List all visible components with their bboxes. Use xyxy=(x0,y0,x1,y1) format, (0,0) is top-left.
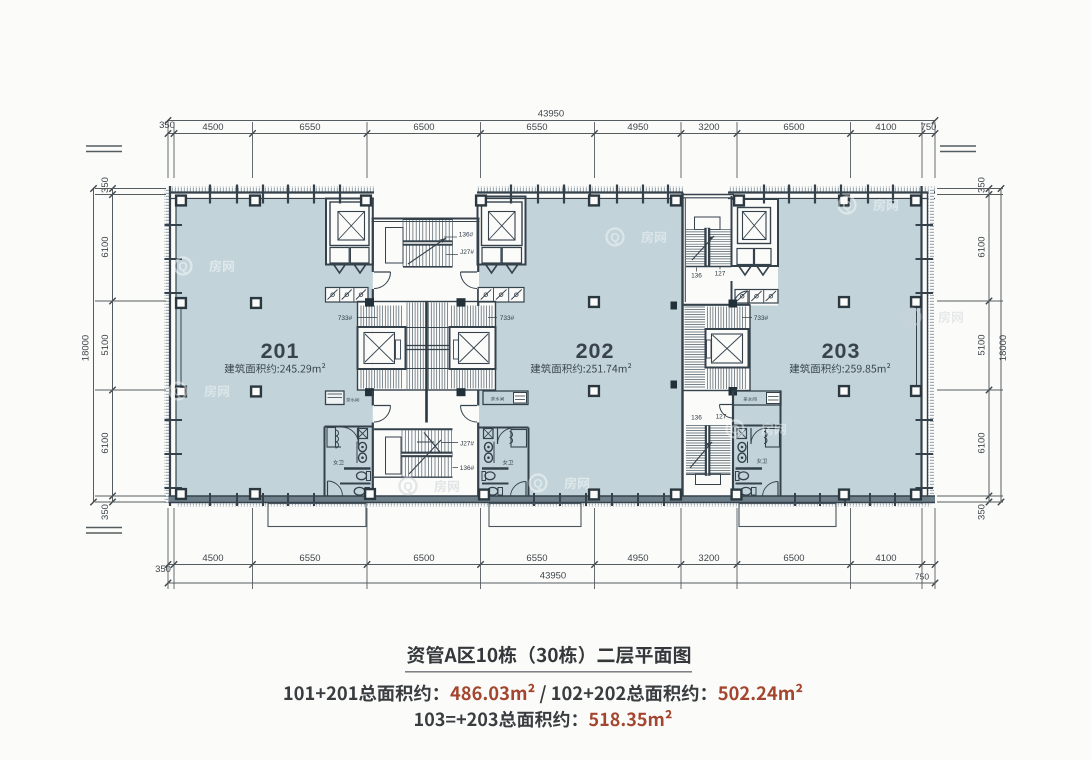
svg-text:6500: 6500 xyxy=(413,122,434,133)
svg-text:201: 201 xyxy=(261,339,300,363)
svg-text:136#: 136# xyxy=(459,232,474,239)
svg-text:Q: Q xyxy=(730,423,739,437)
svg-text:Q: Q xyxy=(178,260,187,274)
svg-text:350: 350 xyxy=(100,177,111,193)
svg-text:127: 127 xyxy=(716,414,727,421)
svg-text:733#: 733# xyxy=(754,315,769,322)
svg-text:4100: 4100 xyxy=(875,553,896,564)
svg-text:350: 350 xyxy=(100,504,111,520)
svg-text:350: 350 xyxy=(977,504,988,520)
svg-text:6500: 6500 xyxy=(413,553,434,564)
svg-text:3200: 3200 xyxy=(698,553,719,564)
svg-text:750: 750 xyxy=(921,122,937,133)
svg-text:136#: 136# xyxy=(460,465,475,472)
svg-text:Q: Q xyxy=(403,480,412,494)
svg-text:4950: 4950 xyxy=(627,122,648,133)
svg-text:6100: 6100 xyxy=(977,432,988,453)
svg-text:733#: 733# xyxy=(338,315,353,322)
svg-text:350: 350 xyxy=(977,177,988,193)
svg-text:5100: 5100 xyxy=(977,334,988,355)
svg-text:6550: 6550 xyxy=(526,553,547,564)
svg-text:203: 203 xyxy=(822,339,861,363)
svg-text:6550: 6550 xyxy=(526,122,547,133)
svg-text:5100: 5100 xyxy=(100,334,111,355)
svg-text:733#: 733# xyxy=(500,315,515,322)
svg-text:136: 136 xyxy=(691,415,702,422)
svg-text:350: 350 xyxy=(155,564,171,575)
svg-text:18000: 18000 xyxy=(81,335,92,361)
svg-text:43950: 43950 xyxy=(540,571,566,582)
svg-text:136: 136 xyxy=(691,273,702,280)
svg-text:127: 127 xyxy=(715,271,726,278)
svg-text:3200: 3200 xyxy=(698,122,719,133)
svg-text:Q: Q xyxy=(610,231,619,245)
svg-text:43950: 43950 xyxy=(538,109,564,120)
svg-text:350: 350 xyxy=(159,120,175,131)
svg-text:6550: 6550 xyxy=(299,553,320,564)
svg-text:Q: Q xyxy=(173,385,182,399)
svg-text:6550: 6550 xyxy=(299,122,320,133)
svg-text:J27#: J27# xyxy=(460,441,474,448)
svg-text:Q: Q xyxy=(907,311,916,325)
svg-text:Q: Q xyxy=(842,199,851,213)
svg-text:Q: Q xyxy=(533,477,542,491)
svg-text:J27#: J27# xyxy=(460,249,474,256)
svg-text:202: 202 xyxy=(576,339,615,363)
svg-text:6100: 6100 xyxy=(977,236,988,257)
svg-text:4500: 4500 xyxy=(202,553,223,564)
svg-text:6500: 6500 xyxy=(783,553,804,564)
svg-text:6100: 6100 xyxy=(100,236,111,257)
svg-text:6500: 6500 xyxy=(783,122,804,133)
svg-text:4950: 4950 xyxy=(627,553,648,564)
svg-text:4100: 4100 xyxy=(875,122,896,133)
svg-text:18000: 18000 xyxy=(998,335,1009,361)
svg-text:6100: 6100 xyxy=(100,432,111,453)
svg-text:4500: 4500 xyxy=(202,122,223,133)
